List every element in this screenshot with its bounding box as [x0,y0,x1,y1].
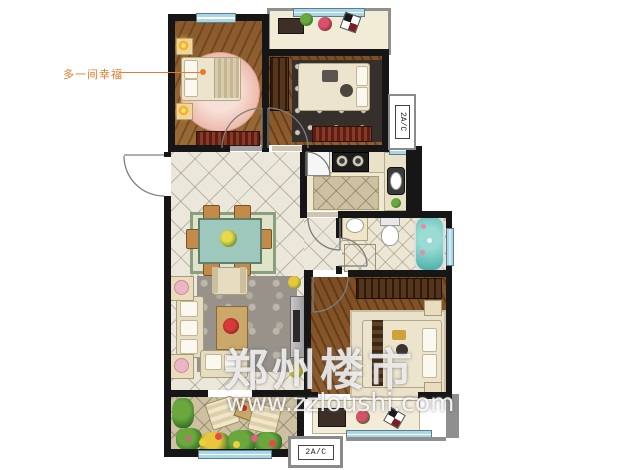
bathroom-door-swing [339,238,367,266]
bedroom-topleft-door-swing [222,108,262,148]
callout-line [119,72,201,73]
entry-door-swing [124,155,164,196]
fridge-door-swing [306,152,330,176]
kitchen-door-swing [308,218,340,250]
bedroom-topright-door-swing [268,108,308,148]
callout-dot [200,69,206,75]
master-door-swing [313,277,348,312]
watermark-url: www.zzloushi.com [226,388,454,417]
floorplan-page: 2A/C 2A/C 多一间幸福 郑州楼市 www.zzloushi.com [0,0,620,470]
callout-label: 多一间幸福 [63,66,123,82]
